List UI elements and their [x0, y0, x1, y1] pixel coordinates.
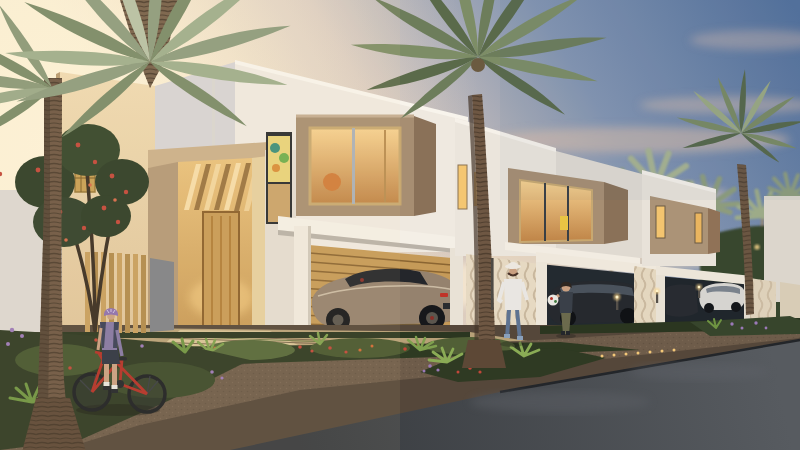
parked-dark-car: [664, 285, 698, 317]
townhouse-dusk-scene: [0, 0, 800, 450]
gray-panel: [150, 258, 174, 332]
rendering-canvas: [0, 0, 800, 450]
carport-column: [294, 226, 310, 334]
cantilever-window-box: [296, 116, 436, 216]
taillight: [440, 293, 448, 297]
parked-white-car: [699, 283, 744, 313]
glowing-slot-window: [458, 165, 467, 209]
ball: [548, 295, 559, 306]
